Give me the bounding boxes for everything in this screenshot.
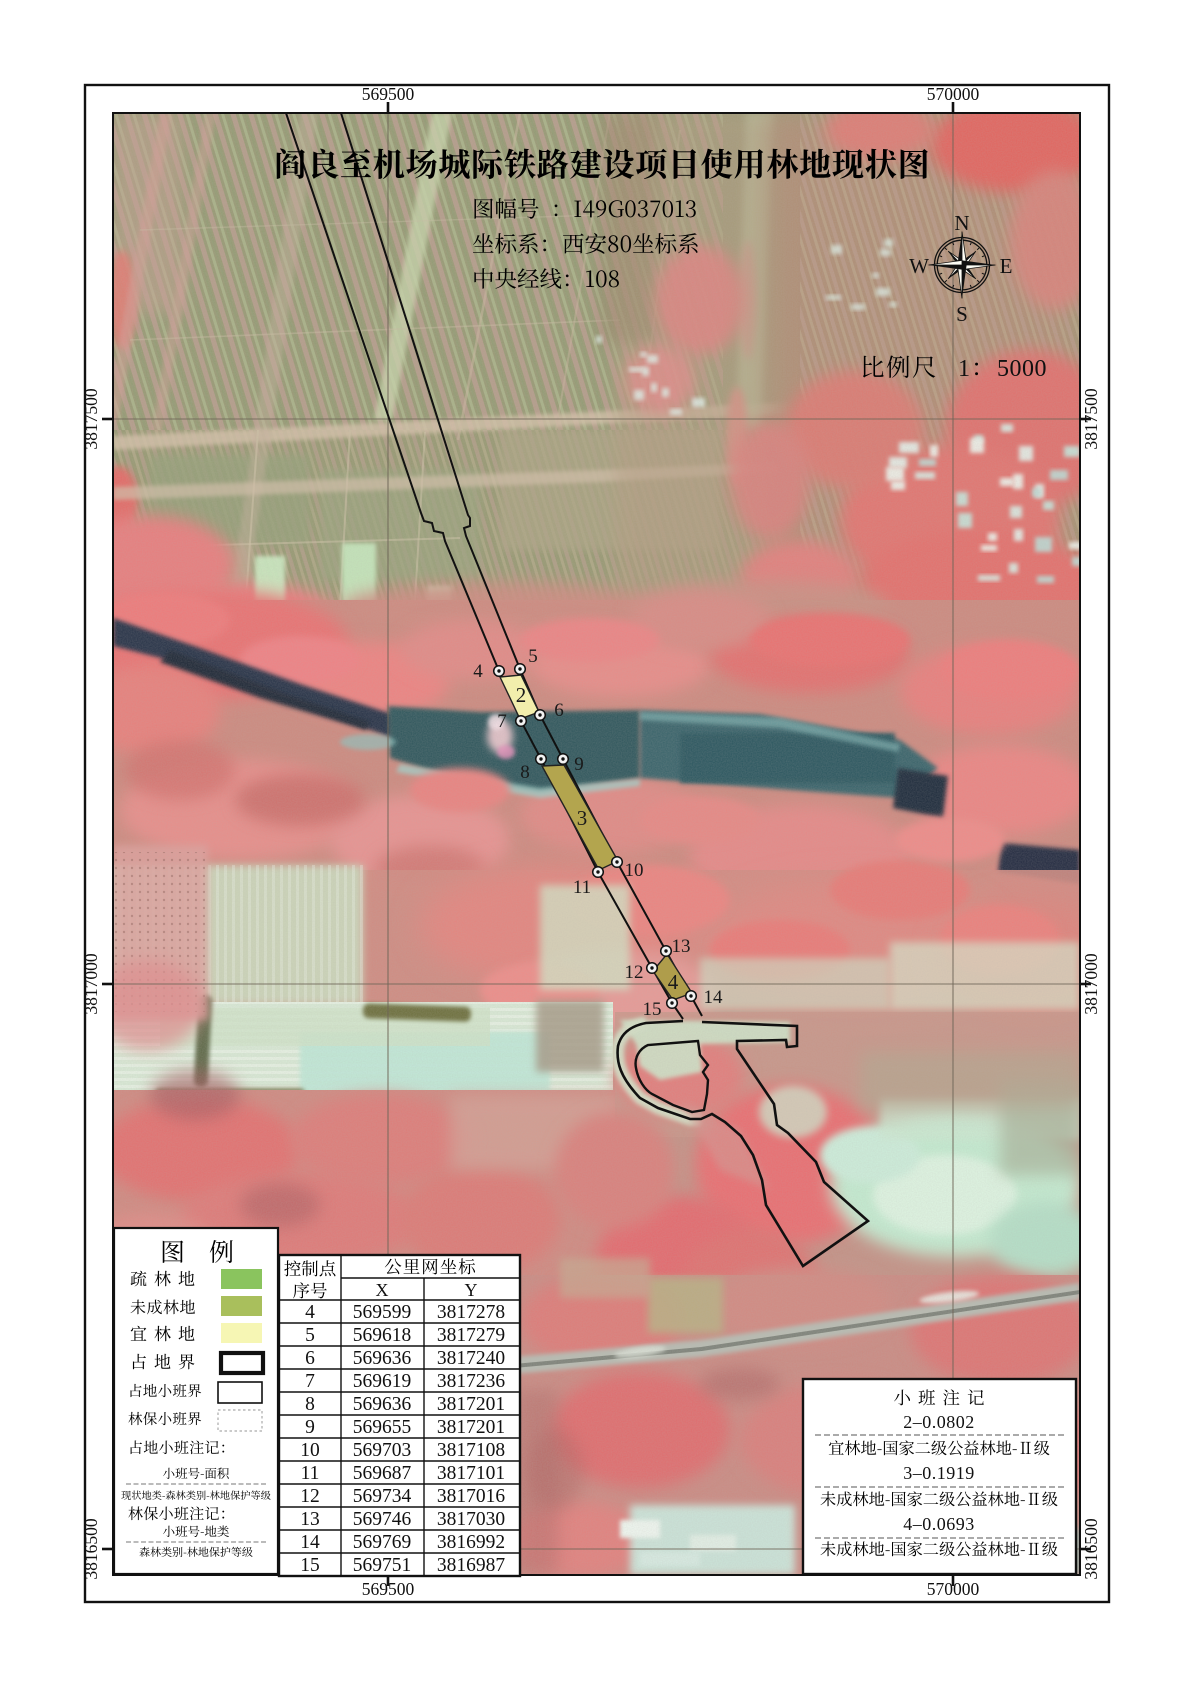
svg-text:8: 8 [520,762,530,783]
svg-text:3: 3 [577,806,588,830]
svg-text:13: 13 [300,1509,320,1530]
svg-text:569636: 569636 [353,1348,412,1369]
svg-text:3817279: 3817279 [437,1325,505,1346]
svg-text:14: 14 [704,987,724,1008]
svg-text:3817236: 3817236 [437,1371,506,1392]
svg-text:12: 12 [625,962,644,983]
svg-text:8: 8 [305,1394,315,1415]
svg-text:4: 4 [668,970,679,994]
svg-text:569734: 569734 [353,1486,412,1507]
svg-text:15: 15 [300,1555,320,1576]
svg-text:3817500: 3817500 [1081,388,1101,450]
svg-text:3817101: 3817101 [437,1463,505,1484]
svg-text:3816500: 3816500 [1081,1518,1101,1580]
svg-text:569500: 569500 [362,84,415,104]
svg-text:S: S [956,302,968,326]
svg-text:3817500: 3817500 [81,388,101,450]
svg-text:569769: 569769 [353,1532,412,1553]
svg-text:569619: 569619 [353,1371,412,1392]
svg-text:7: 7 [497,711,507,732]
svg-text:569687: 569687 [353,1463,412,1484]
svg-text:3817000: 3817000 [1081,953,1101,1015]
svg-text:3817016: 3817016 [437,1486,506,1507]
svg-text:3816500: 3816500 [81,1518,101,1580]
svg-text:569500: 569500 [362,1579,415,1599]
svg-text:569655: 569655 [353,1417,412,1438]
svg-text:3817240: 3817240 [437,1348,505,1369]
svg-text:569618: 569618 [353,1325,412,1346]
svg-text:4: 4 [473,661,483,682]
svg-text:5: 5 [528,646,538,667]
svg-text:3817201: 3817201 [437,1394,505,1415]
svg-text:14: 14 [300,1532,320,1553]
svg-text:3816992: 3816992 [437,1532,505,1553]
svg-text:569599: 569599 [353,1302,412,1323]
svg-text:570000: 570000 [927,1579,980,1599]
svg-text:15: 15 [643,999,662,1020]
svg-text:E: E [1000,254,1013,278]
svg-text:570000: 570000 [927,84,980,104]
svg-text:4–0.0693: 4–0.0693 [903,1514,975,1534]
svg-text:Y: Y [465,1280,478,1300]
svg-text:7: 7 [305,1371,315,1392]
svg-text:3817201: 3817201 [437,1417,505,1438]
svg-text:N: N [954,211,969,235]
svg-text:11: 11 [301,1463,320,1484]
svg-text:2–0.0802: 2–0.0802 [903,1412,975,1432]
svg-text:2: 2 [516,683,527,707]
svg-text:569703: 569703 [353,1440,412,1461]
svg-text:3817108: 3817108 [437,1440,505,1461]
svg-text:569636: 569636 [353,1394,412,1415]
svg-text:4: 4 [305,1302,315,1323]
svg-text:12: 12 [300,1486,320,1507]
svg-text:3817030: 3817030 [437,1509,505,1530]
svg-text:3816987: 3816987 [437,1555,506,1576]
svg-text:9: 9 [574,754,584,775]
svg-text:X: X [376,1280,389,1300]
svg-text:1: 1 [958,356,970,382]
svg-text:6: 6 [554,700,564,721]
svg-text:3817000: 3817000 [81,953,101,1015]
svg-text:W: W [909,254,929,278]
svg-text:5: 5 [305,1325,315,1346]
svg-text:6: 6 [305,1348,315,1369]
svg-text:9: 9 [305,1417,315,1438]
svg-text:3–0.1919: 3–0.1919 [903,1463,975,1483]
svg-text:5000: 5000 [997,356,1047,382]
svg-text:10: 10 [300,1440,320,1461]
svg-text:11: 11 [573,877,591,898]
svg-text:3817278: 3817278 [437,1302,505,1323]
svg-text:10: 10 [625,860,644,881]
svg-text:569746: 569746 [353,1509,412,1530]
svg-text:13: 13 [672,936,691,957]
svg-text:569751: 569751 [353,1555,412,1576]
